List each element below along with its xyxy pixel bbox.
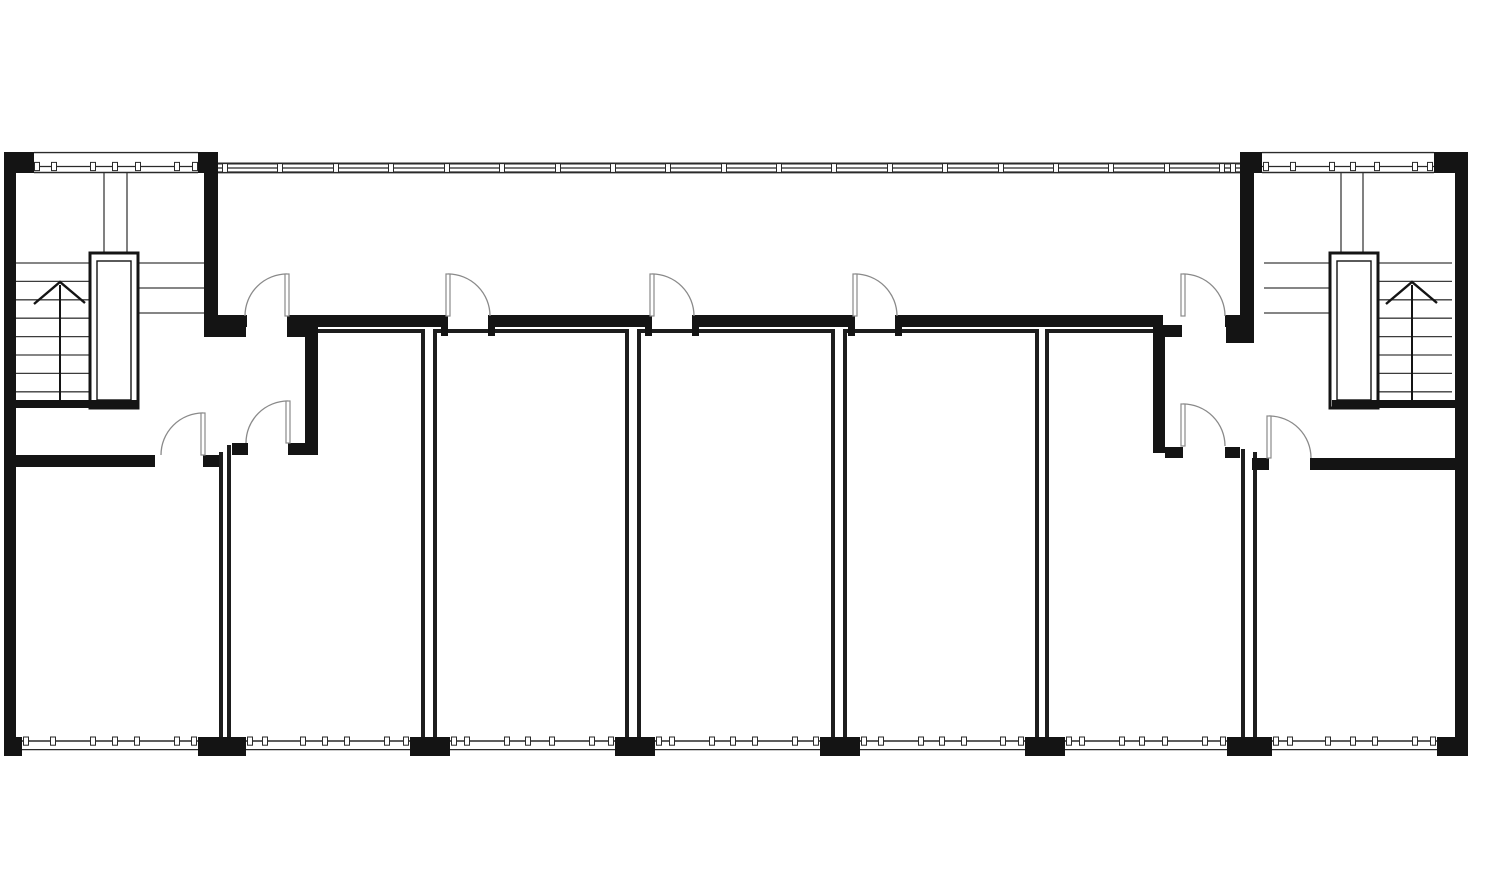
top-wall-left-block-west (4, 152, 34, 173)
window-mullion-tick (1274, 737, 1279, 745)
corner-room-right-door-leaf (1267, 416, 1271, 458)
corridor-wall-segment (895, 315, 1163, 327)
corridor-door-right-lobby-leaf (1181, 274, 1185, 316)
window-mullion-tick (500, 164, 505, 173)
window-mullion-tick (1413, 737, 1418, 745)
corridor-wall-segment (692, 315, 855, 327)
window-mullion-tick (263, 737, 268, 745)
corner-room-right-top-wall (1310, 458, 1455, 470)
window-mullion-tick (710, 737, 715, 745)
window-mullion-tick (1375, 162, 1380, 170)
window-mullion-tick (670, 737, 675, 745)
corner-room-right-door-jamb (1252, 458, 1269, 470)
plan-sheet (0, 0, 1500, 884)
window-mullion-tick (91, 737, 96, 745)
window-mullion-tick (657, 737, 662, 745)
window-mullion-tick (1067, 737, 1072, 745)
door-jamb (645, 327, 652, 336)
window-mullion-tick (1351, 162, 1356, 170)
window-mullion-tick (1140, 737, 1145, 745)
door-jamb (895, 327, 902, 336)
exterior-pier (198, 737, 246, 756)
stair-separation-wall-right (1240, 152, 1254, 343)
corridor-wall-foot-left (218, 327, 246, 337)
corridor-wall-foot-right (1226, 327, 1240, 343)
room-e-entry-wall-west (1165, 447, 1183, 458)
door-jamb (692, 327, 699, 336)
window-mullion-tick (879, 737, 884, 745)
corridor-wall-segment (1225, 315, 1240, 327)
corner-room-left-door-leaf (201, 413, 205, 455)
window-mullion-tick (1291, 162, 1296, 170)
exterior-pier (1227, 737, 1272, 756)
vestibule-wall-right (1153, 327, 1165, 453)
window-mullion-tick (1109, 164, 1114, 173)
window-mullion-tick (753, 737, 758, 745)
exterior-pier (1437, 737, 1468, 756)
window-mullion-tick (175, 737, 180, 745)
exterior-pier (1025, 737, 1065, 756)
window-mullion-tick (248, 737, 253, 745)
window-mullion-tick (135, 737, 140, 745)
window-mullion-tick (1203, 737, 1208, 745)
window-mullion-tick (731, 737, 736, 745)
window-mullion-tick (1413, 162, 1418, 170)
door-jamb (441, 327, 448, 336)
room-a-entry-wall-west (232, 443, 248, 455)
window-mullion-tick (389, 164, 394, 173)
window-mullion-tick (590, 737, 595, 745)
window-mullion-tick (52, 162, 57, 170)
window-mullion-tick (1428, 162, 1433, 170)
window-mullion-tick (136, 162, 141, 170)
window-mullion-tick (113, 737, 118, 745)
window-mullion-tick (445, 164, 450, 173)
window-mullion-tick (1163, 737, 1168, 745)
window-mullion-tick (385, 737, 390, 745)
corner-room-left-door-jamb (203, 455, 219, 467)
window-mullion-tick (193, 162, 198, 170)
window-mullion-tick (192, 737, 197, 745)
window-mullion-tick (452, 737, 457, 745)
room-e-entry-wall-east (1225, 447, 1240, 458)
corridor-wall-segment (488, 315, 652, 327)
room-c-corridor-door-leaf (650, 274, 654, 316)
window-mullion-tick (666, 164, 671, 173)
window-mullion-tick (301, 737, 306, 745)
window-mullion-tick (609, 737, 614, 745)
exterior-pier (410, 737, 450, 756)
exterior-wall-right (1455, 152, 1468, 755)
exterior-pier (615, 737, 655, 756)
window-mullion-tick (1220, 164, 1225, 173)
vestibule-wall-left (305, 327, 318, 455)
room-a-entry-door-leaf (286, 401, 290, 443)
window-mullion-tick (1165, 164, 1170, 173)
window-mullion-tick (940, 737, 945, 745)
window-mullion-tick (113, 162, 118, 170)
window-mullion-tick (556, 164, 561, 173)
window-mullion-tick (1120, 737, 1125, 745)
window-mullion-tick (999, 164, 1004, 173)
window-mullion-tick (223, 164, 228, 173)
door-jamb (488, 327, 495, 336)
window-mullion-tick (91, 162, 96, 170)
window-mullion-tick (793, 737, 798, 745)
window-mullion-tick (888, 164, 893, 173)
window-mullion-tick (465, 737, 470, 745)
window-mullion-tick (832, 164, 837, 173)
stair-separation-wall-left (204, 152, 218, 337)
window-mullion-tick (526, 737, 531, 745)
window-mullion-tick (175, 162, 180, 170)
window-mullion-tick (51, 737, 56, 745)
window-mullion-tick (1326, 737, 1331, 745)
exterior-pier (820, 737, 860, 756)
room-b-corridor-door-leaf (446, 274, 450, 316)
window-mullion-tick (943, 164, 948, 173)
window-mullion-tick (278, 164, 283, 173)
window-mullion-tick (1373, 737, 1378, 745)
stair-enclosure-wall-left (13, 400, 137, 408)
room-e-entry-door-leaf (1181, 404, 1185, 446)
exterior-pier (4, 737, 22, 756)
room-d-corridor-door-leaf (853, 274, 857, 316)
floor-plan (0, 0, 1500, 884)
corridor-door-left-lobby-leaf (285, 274, 289, 316)
window-mullion-tick (1019, 737, 1024, 745)
window-mullion-tick (550, 737, 555, 745)
window-mullion-tick (722, 164, 727, 173)
window-mullion-tick (814, 737, 819, 745)
window-mullion-tick (1231, 164, 1236, 173)
room-a-entry-wall-east (288, 443, 318, 455)
window-mullion-tick (1288, 737, 1293, 745)
window-mullion-tick (1351, 737, 1356, 745)
window-mullion-tick (919, 737, 924, 745)
stair-enclosure-wall-right (1332, 400, 1455, 408)
window-mullion-tick (404, 737, 409, 745)
window-mullion-tick (35, 162, 40, 170)
window-mullion-tick (24, 737, 29, 745)
door-jamb (848, 327, 855, 336)
top-wall-right-block-east (1434, 152, 1468, 173)
corner-room-left-top-wall (4, 455, 155, 467)
window-mullion-tick (962, 737, 967, 745)
window-mullion-tick (1001, 737, 1006, 745)
window-mullion-tick (334, 164, 339, 173)
window-mullion-tick (1330, 162, 1335, 170)
window-mullion-tick (323, 737, 328, 745)
window-mullion-tick (1054, 164, 1059, 173)
window-mullion-tick (1080, 737, 1085, 745)
window-mullion-tick (1431, 737, 1436, 745)
exterior-wall-left (4, 152, 16, 755)
window-mullion-tick (777, 164, 782, 173)
window-mullion-tick (862, 737, 867, 745)
window-mullion-tick (345, 737, 350, 745)
window-mullion-tick (1221, 737, 1226, 745)
corridor-wall-segment (218, 315, 247, 327)
window-mullion-tick (611, 164, 616, 173)
window-mullion-tick (505, 737, 510, 745)
window-mullion-tick (1264, 162, 1269, 170)
